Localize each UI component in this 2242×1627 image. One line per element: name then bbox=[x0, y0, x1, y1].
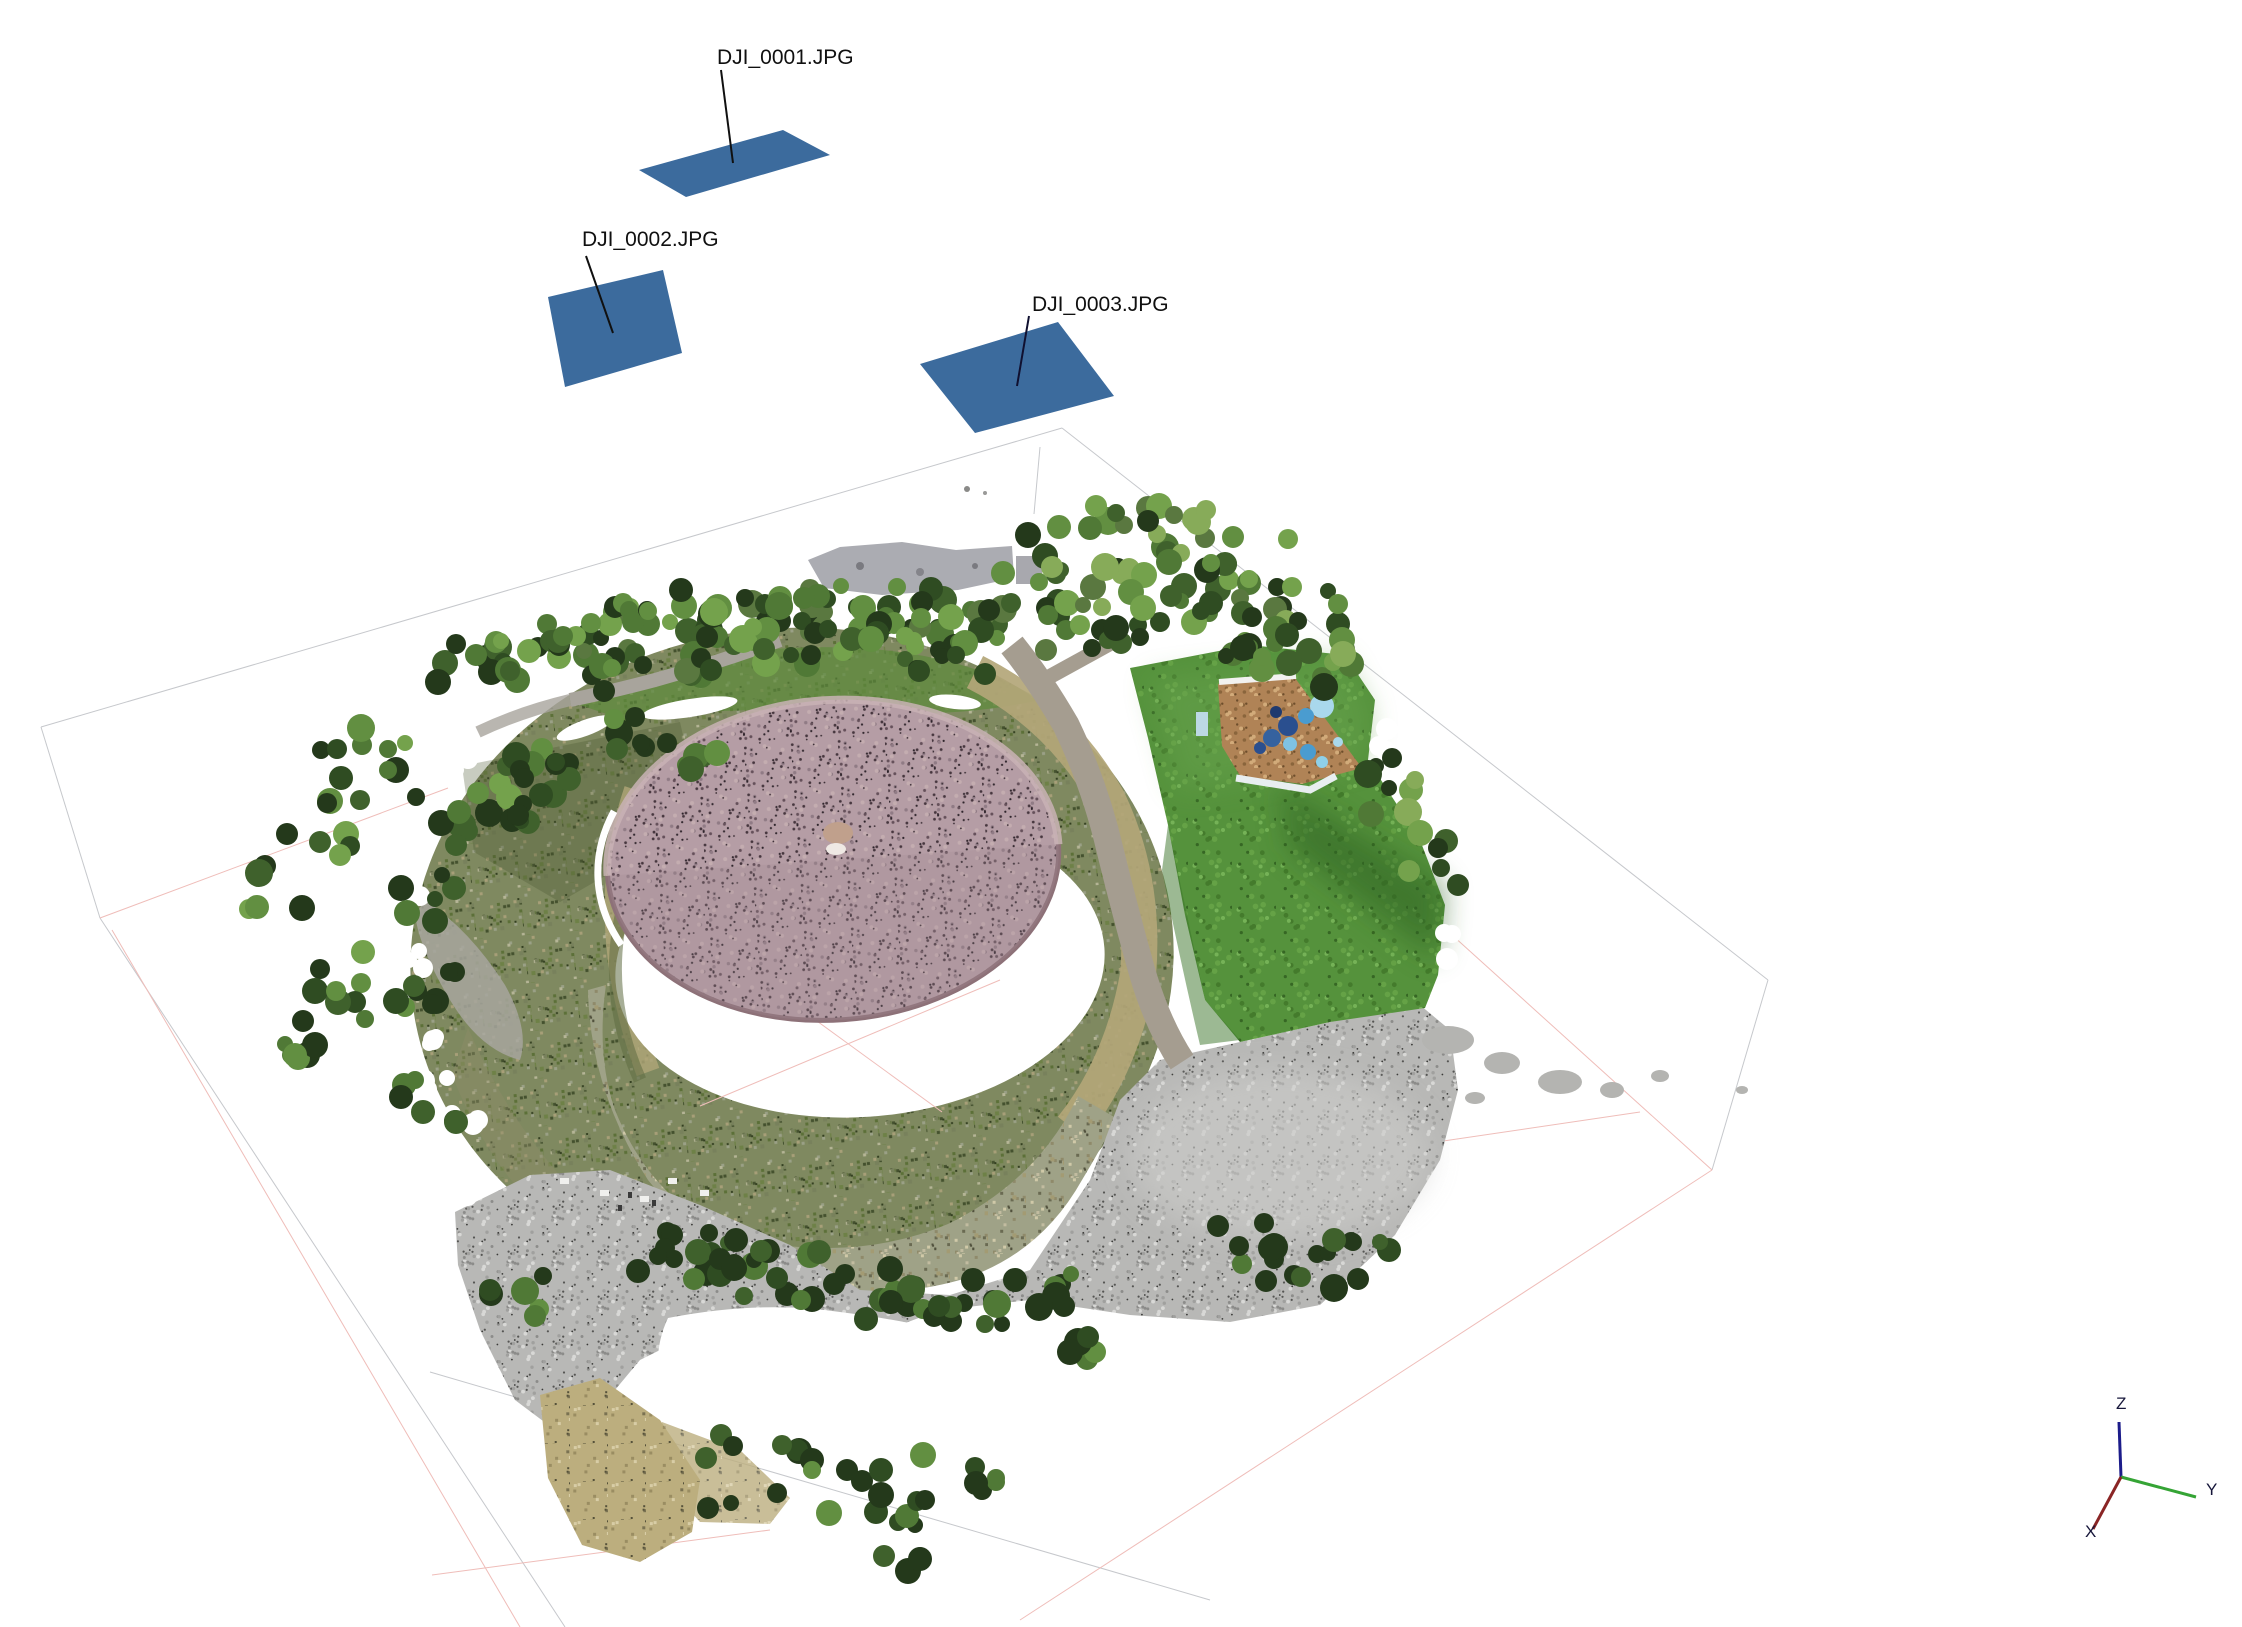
svg-text:DJI_0002.JPG: DJI_0002.JPG bbox=[582, 228, 719, 251]
svg-text:Y: Y bbox=[2206, 1480, 2217, 1499]
svg-text:X: X bbox=[2085, 1522, 2096, 1541]
svg-text:DJI_0001.JPG: DJI_0001.JPG bbox=[717, 46, 854, 69]
svg-text:Z: Z bbox=[2116, 1394, 2126, 1413]
svg-text:DJI_0003.JPG: DJI_0003.JPG bbox=[1032, 293, 1169, 316]
